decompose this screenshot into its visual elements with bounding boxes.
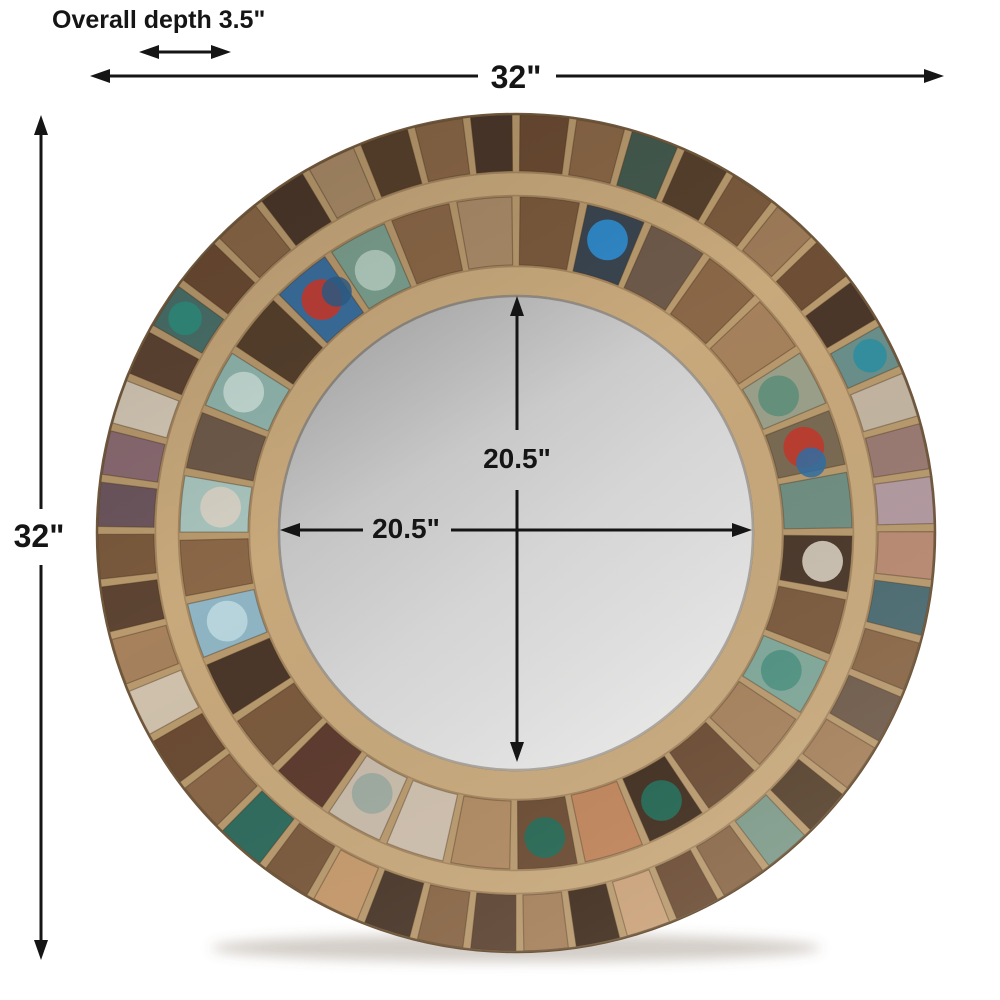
product-dimension-diagram: Overall depth 3.5" 32" 32" 20.5" 20.5" [0, 0, 1000, 1000]
overall-height-label: 32" [14, 520, 65, 552]
mirror-product-image [0, 0, 1000, 1000]
overall-depth-arrow [139, 45, 231, 59]
overall-width-label: 32" [491, 61, 542, 93]
overall-depth-label: Overall depth 3.5" [52, 8, 265, 33]
mirror-height-label: 20.5" [483, 445, 551, 473]
mirror-width-label: 20.5" [372, 515, 440, 543]
